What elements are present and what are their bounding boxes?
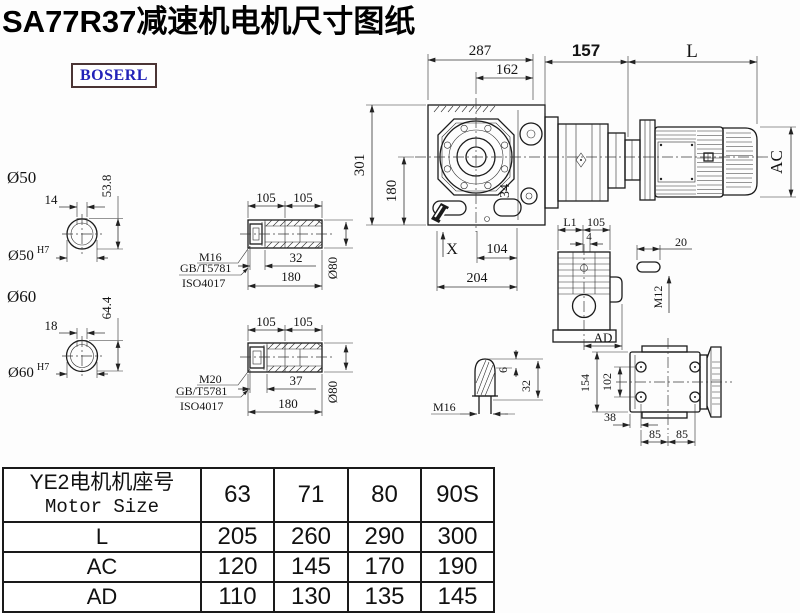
cell-L-63: 205: [201, 522, 274, 552]
fastener-iso-lower: ISO4017: [180, 399, 223, 413]
dim-key-depth-64-4: 64.4: [99, 296, 114, 319]
dim-32-plug: 32: [519, 380, 533, 392]
row-label-L: L: [3, 522, 201, 552]
dim-154: 154: [578, 374, 592, 392]
cell-AC-90s: 190: [421, 552, 494, 582]
dim-287: 287: [469, 43, 492, 59]
hollow-shaft-lower-view: 105 105 37 180 Ø80 M20 GB/T5781 ISO4017: [175, 314, 353, 416]
cell-L-80: 290: [348, 522, 421, 552]
dim-162: 162: [496, 62, 519, 78]
main-view-dimensions: 287 162 157 L AC 301 180 34 X 104 204: [352, 41, 796, 291]
size-col-80: 80: [348, 468, 421, 522]
dim-180-upper: 180: [281, 269, 301, 284]
fastener-iso-upper: ISO4017: [182, 276, 225, 290]
dim-key-width-14: 14: [45, 192, 59, 207]
bore-60-tolerance: H7: [37, 362, 49, 373]
cell-AC-71: 145: [274, 552, 348, 582]
row-label-AC: AC: [3, 552, 201, 582]
thread-m12: M12: [651, 286, 665, 309]
brand-logo: BOSERL: [71, 63, 157, 88]
table-row-L: L 205 260 290 300: [3, 522, 494, 552]
dim-34: 34: [498, 184, 513, 198]
main-assembly-view: [415, 98, 768, 232]
dim-105-left-lower: 105: [256, 314, 276, 329]
motor-size-table: YE2电机机座号 Motor Size 63 71 80 90S L 205 2…: [2, 467, 495, 613]
size-col-63: 63: [201, 468, 274, 522]
cell-L-90s: 300: [421, 522, 494, 552]
dim-180-lower: 180: [278, 396, 298, 411]
dim-104: 104: [487, 242, 508, 257]
size-col-71: 71: [274, 468, 348, 522]
shaft-end-view-60: Ø60 18 64.4 Ø60 H7: [7, 287, 123, 381]
dim-301: 301: [352, 154, 368, 177]
dim-AC: AC: [767, 150, 786, 174]
table-row-AD: AD 110 130 135 145: [3, 582, 494, 612]
hollow-shaft-upper-view: 105 105 32 180 Ø80 M16 GB/T5781 ISO4017: [179, 190, 353, 290]
dim-L: L: [686, 41, 698, 62]
cell-AD-71: 130: [274, 582, 348, 612]
dim-105-right: 105: [293, 190, 313, 205]
cell-AC-63: 120: [201, 552, 274, 582]
dim-157: 157: [572, 41, 600, 60]
cell-L-71: 260: [274, 522, 348, 552]
shaft-end-view-50: Ø50 14 53.8 Ø50 H7: [7, 168, 123, 264]
brand-logo-text: BOSERL: [80, 67, 148, 84]
key-profile: [637, 262, 660, 272]
dim-204: 204: [467, 271, 488, 286]
dim-105-left: 105: [256, 190, 276, 205]
dim-key-depth-53-8: 53.8: [99, 175, 114, 198]
header-en: Motor Size: [4, 495, 200, 519]
bore-60: Ø60: [8, 365, 34, 381]
dim-dia-80-lower: Ø80: [325, 381, 340, 403]
plug-detail-view: 6 32 M16: [431, 350, 543, 414]
drawing-sheet: 287 162 157 L AC 301 180 34 X 104 204: [0, 0, 800, 613]
cell-AD-80: 135: [348, 582, 421, 612]
fastener-standard-lower: GB/T5781: [176, 384, 227, 398]
dim-102: 102: [600, 373, 614, 391]
dim-180: 180: [384, 180, 400, 203]
dim-ad: AD: [594, 330, 613, 345]
shaft60-label: Ø60: [7, 287, 36, 306]
cell-AC-80: 170: [348, 552, 421, 582]
mark-x: X: [446, 241, 458, 258]
shaft50-label: Ø50: [7, 168, 36, 187]
dim-85-left: 85: [649, 427, 661, 441]
cell-AD-63: 110: [201, 582, 274, 612]
table-row-AC: AC 120 145 170 190: [3, 552, 494, 582]
size-col-90s: 90S: [421, 468, 494, 522]
plug-thread-m16: M16: [433, 400, 456, 414]
dim-85-right: 85: [676, 427, 688, 441]
dim-4: 4: [586, 231, 592, 243]
dim-20: 20: [675, 235, 687, 249]
dim-dia-80-upper: Ø80: [325, 257, 340, 279]
page-title: SA77R37减速机电机尺寸图纸: [2, 0, 415, 41]
dim-l1: L1: [563, 215, 576, 229]
dim-37: 37: [290, 373, 304, 388]
dim-key-width-18: 18: [45, 318, 58, 333]
gearbox-rear-view: 154 102 38 85 85: [578, 338, 732, 446]
dim-38: 38: [604, 410, 616, 424]
row-label-AD: AD: [3, 582, 201, 612]
bore-50: Ø50: [8, 248, 34, 264]
table-header-motor-size: YE2电机机座号 Motor Size: [3, 468, 201, 522]
dim-105-right-lower: 105: [293, 314, 313, 329]
dim-6: 6: [496, 367, 510, 373]
gearbox-side-view: L1 105 4 AD 20 M12: [553, 215, 692, 352]
cell-AD-90s: 145: [421, 582, 494, 612]
bore-50-tolerance: H7: [37, 245, 49, 256]
header-cn: YE2电机机座号: [4, 471, 200, 495]
dim-105-side: 105: [587, 215, 605, 229]
dim-32: 32: [290, 250, 303, 265]
